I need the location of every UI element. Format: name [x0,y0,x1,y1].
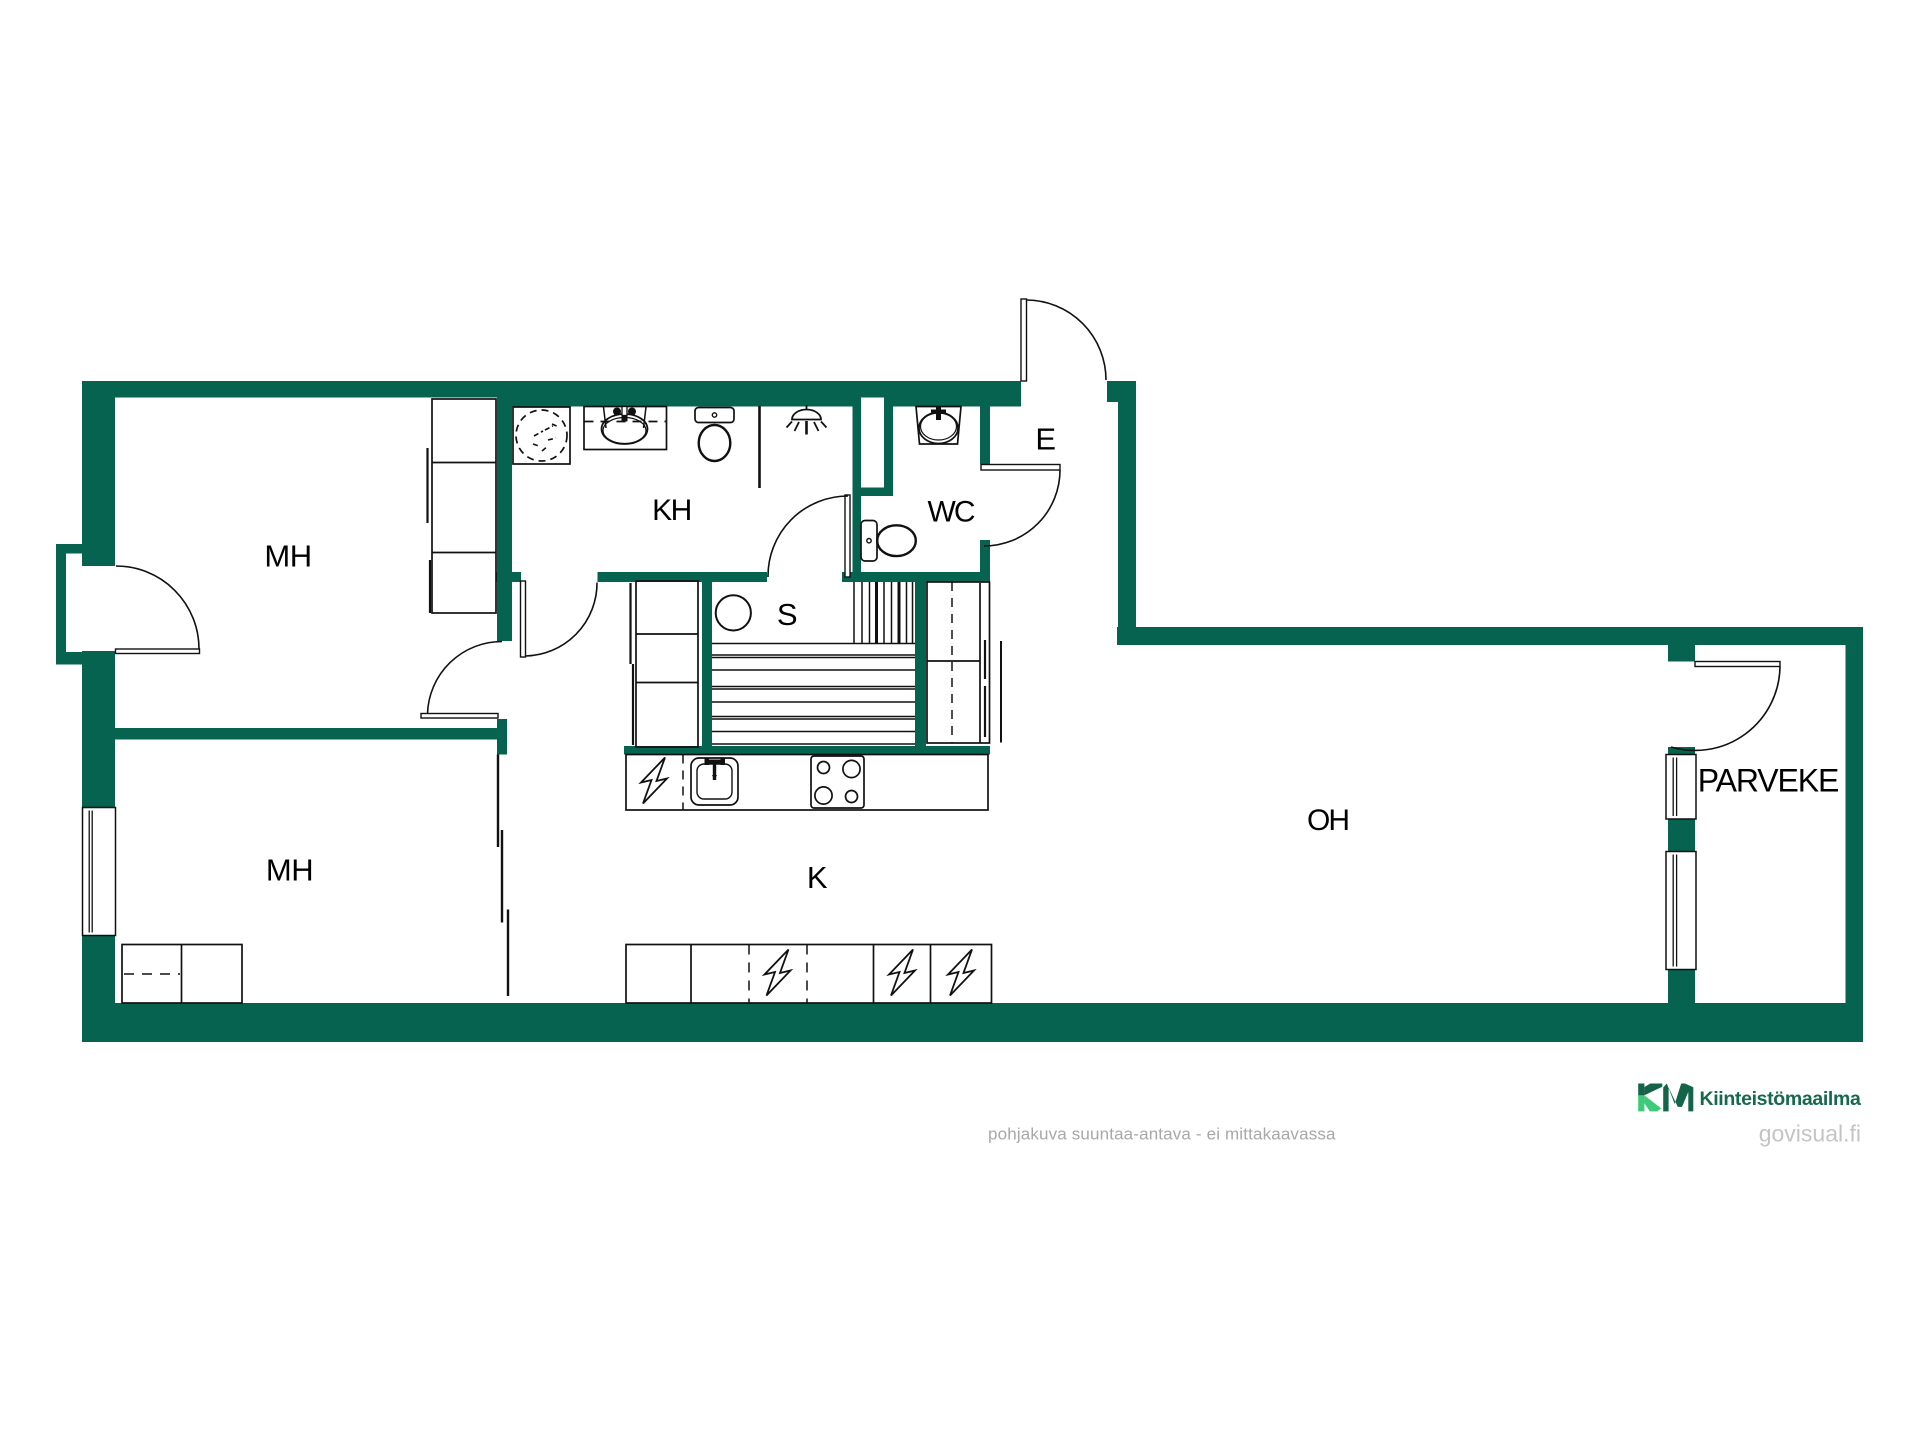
svg-text:K: K [807,860,828,895]
svg-text:Kiinteistömaailma: Kiinteistömaailma [1700,1088,1861,1110]
svg-text:MH: MH [266,853,313,888]
svg-text:PARVEKE: PARVEKE [1698,763,1839,799]
svg-text:KH: KH [652,494,691,527]
svg-text:E: E [1035,422,1055,457]
svg-text:pohjakuva suuntaa-antava - ei: pohjakuva suuntaa-antava - ei mittakaava… [988,1125,1336,1144]
svg-text:WC: WC [928,496,975,529]
svg-text:S: S [777,597,797,632]
svg-text:govisual.fi: govisual.fi [1759,1121,1861,1147]
svg-text:MH: MH [264,539,311,574]
svg-text:OH: OH [1307,804,1348,837]
